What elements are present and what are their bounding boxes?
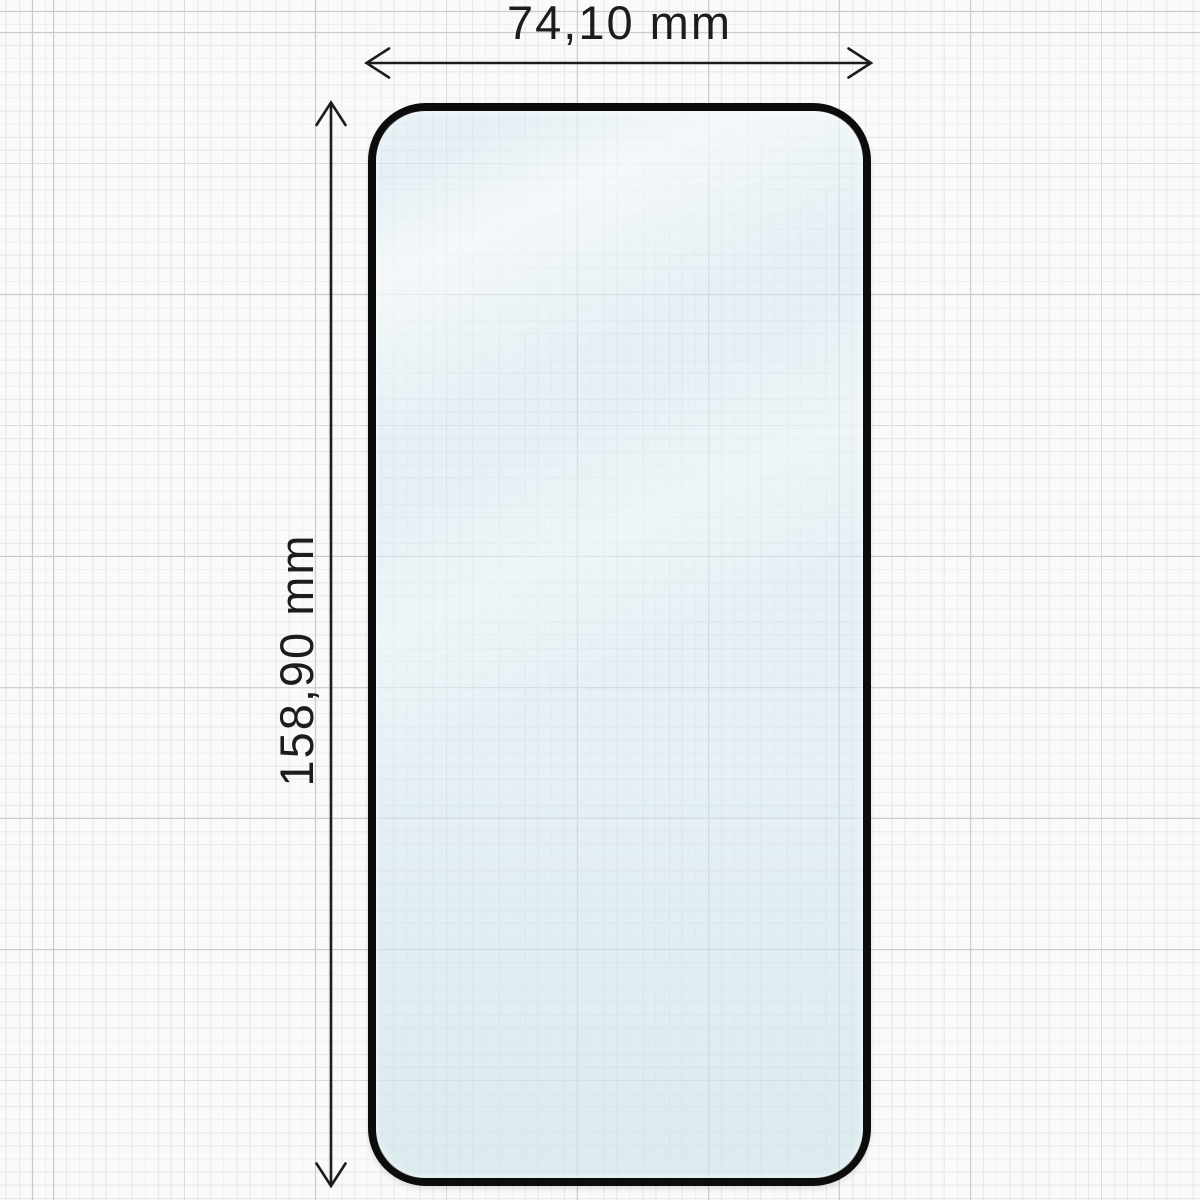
height-dimension-label: 158,90 mm: [270, 533, 324, 786]
width-dimension-label: 74,10 mm: [368, 0, 871, 50]
arrowhead-up-icon: [317, 103, 346, 126]
arrowhead-down-icon: [317, 1164, 346, 1187]
arrowhead-right-icon: [849, 49, 872, 78]
arrowhead-left-icon: [367, 49, 390, 78]
width-dimension-arrow: [367, 49, 872, 78]
screen-protector-glass: [368, 103, 871, 1186]
graph-paper-background: 74,10 mm 158,90 mm: [0, 0, 1200, 1200]
glass-reflection-highlight: [376, 111, 863, 1178]
